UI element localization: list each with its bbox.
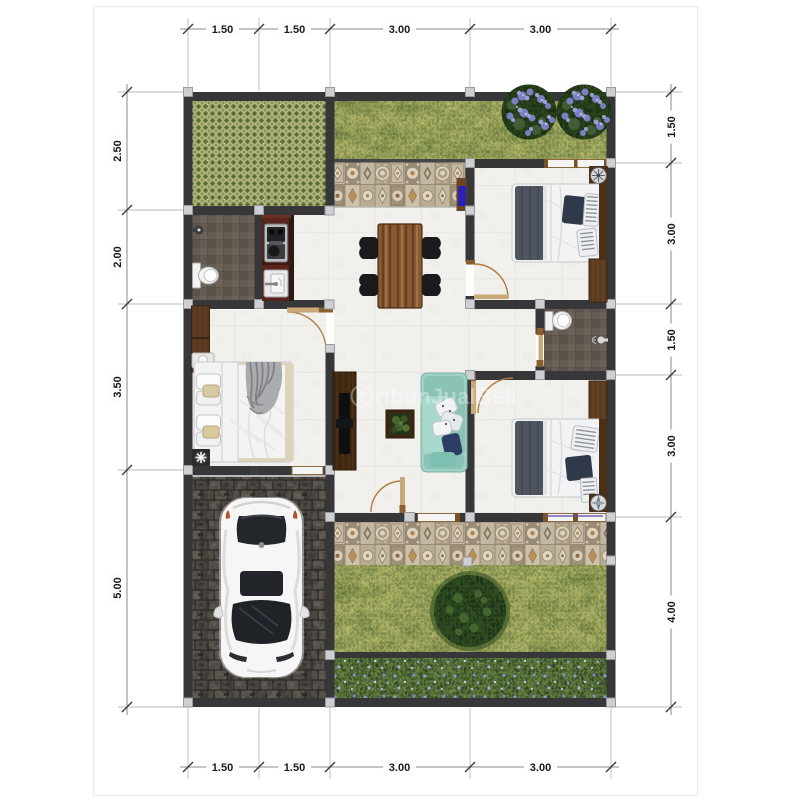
svg-text:T: T [357,390,367,407]
svg-text:2.00: 2.00 [112,246,124,267]
svg-text:3.00: 3.00 [530,24,551,36]
svg-text:3.50: 3.50 [112,376,124,397]
svg-text:1.50: 1.50 [666,329,678,350]
svg-text:3.00: 3.00 [530,762,551,774]
svg-text:1.50: 1.50 [666,116,678,137]
svg-text:1.50: 1.50 [212,24,233,36]
svg-text:1.50: 1.50 [212,762,233,774]
svg-text:5.00: 5.00 [112,577,124,598]
svg-text:1.50: 1.50 [284,762,305,774]
svg-text:3.00: 3.00 [389,762,410,774]
svg-text:4.00: 4.00 [666,601,678,622]
svg-text:ribunJualBeli: ribunJualBeli [375,384,517,409]
svg-text:3.00: 3.00 [389,24,410,36]
svg-text:3.00: 3.00 [666,223,678,244]
svg-text:1.50: 1.50 [284,24,305,36]
svg-text:3.00: 3.00 [666,435,678,456]
svg-text:2.50: 2.50 [112,140,124,161]
